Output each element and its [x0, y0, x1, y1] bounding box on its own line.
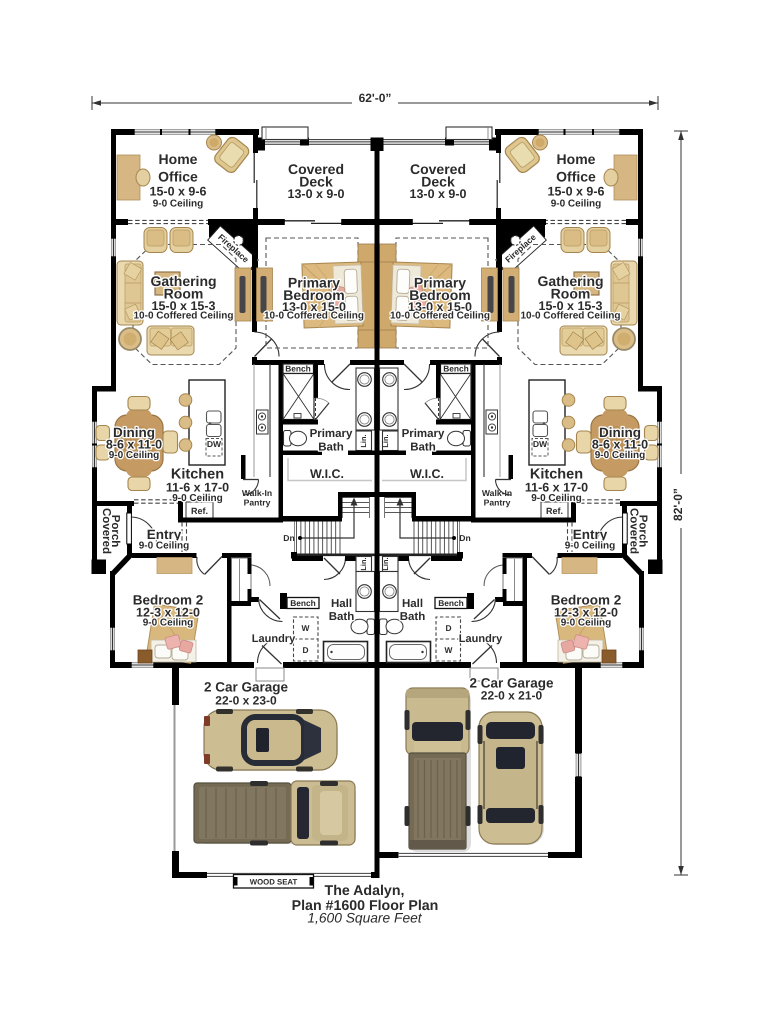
svg-text:82'-0”: 82'-0” [671, 488, 685, 521]
svg-text:13-0 x 9-0: 13-0 x 9-0 [410, 187, 467, 201]
svg-text:Walk-In: Walk-In [482, 488, 512, 498]
svg-text:13-0 x 9-0: 13-0 x 9-0 [288, 187, 345, 201]
svg-text:Walk-In: Walk-In [242, 488, 272, 498]
svg-text:Porch: Porch [637, 515, 649, 548]
svg-text:Laundry: Laundry [252, 633, 296, 645]
svg-text:9-0 Ceiling: 9-0 Ceiling [551, 199, 602, 210]
svg-text:Bath: Bath [400, 611, 426, 623]
svg-text:Bench: Bench [438, 598, 464, 608]
svg-text:Home: Home [557, 151, 596, 167]
svg-text:22-0 x 21-0: 22-0 x 21-0 [481, 689, 543, 703]
svg-text:9-0 Ceiling: 9-0 Ceiling [172, 493, 223, 504]
svg-text:10-0 Coffered Ceiling: 10-0 Coffered Ceiling [390, 311, 490, 322]
svg-text:Primary: Primary [310, 428, 353, 440]
svg-text:22-0 x 23-0: 22-0 x 23-0 [215, 694, 277, 708]
svg-text:Lin.: Lin. [381, 434, 390, 447]
svg-text:9-0 Ceiling: 9-0 Ceiling [565, 541, 616, 552]
svg-text:9-0 Ceiling: 9-0 Ceiling [109, 450, 160, 461]
svg-text:Lin.: Lin. [359, 557, 368, 570]
svg-text:Bath: Bath [329, 611, 355, 623]
svg-text:WOOD SEAT: WOOD SEAT [250, 878, 298, 887]
svg-text:Bench: Bench [290, 598, 316, 608]
svg-text:Dn: Dn [283, 533, 294, 543]
svg-text:10-0 Coffered Ceiling: 10-0 Coffered Ceiling [520, 311, 620, 322]
svg-text:Hall: Hall [331, 598, 352, 610]
svg-text:Lin.: Lin. [381, 557, 390, 570]
svg-text:Bench: Bench [443, 364, 469, 374]
svg-text:9-0 Ceiling: 9-0 Ceiling [561, 618, 612, 629]
svg-text:Primary: Primary [402, 428, 445, 440]
svg-text:W.I.C.: W.I.C. [410, 467, 444, 481]
svg-text:10-0 Coffered Ceiling: 10-0 Coffered Ceiling [133, 311, 233, 322]
svg-text:W.I.C.: W.I.C. [310, 467, 344, 481]
svg-text:W: W [302, 623, 310, 633]
svg-text:Lin.: Lin. [359, 434, 368, 447]
svg-text:Bath: Bath [318, 442, 344, 454]
svg-text:Porch: Porch [109, 515, 121, 548]
svg-text:9-0 Ceiling: 9-0 Ceiling [143, 618, 194, 629]
svg-text:1,600 Square Feet: 1,600 Square Feet [307, 911, 422, 926]
svg-text:DW: DW [207, 439, 222, 449]
svg-text:Bench: Bench [285, 364, 311, 374]
svg-text:D: D [445, 623, 451, 633]
svg-text:Ref.: Ref. [191, 506, 208, 516]
svg-text:Home: Home [159, 151, 198, 167]
svg-text:D: D [302, 645, 308, 655]
svg-text:Hall: Hall [402, 598, 423, 610]
svg-text:Office: Office [556, 169, 596, 185]
svg-text:15-0 x 9-6: 15-0 x 9-6 [150, 185, 207, 199]
svg-text:15-0 x 9-6: 15-0 x 9-6 [548, 185, 605, 199]
svg-text:The Adalyn,: The Adalyn, [325, 883, 405, 899]
svg-text:Laundry: Laundry [459, 633, 503, 645]
svg-text:Bath: Bath [410, 442, 436, 454]
svg-text:2 Car Garage: 2 Car Garage [204, 680, 289, 695]
svg-text:Ref.: Ref. [546, 506, 563, 516]
svg-text:62'-0”: 62'-0” [359, 91, 392, 105]
svg-text:10-0 Coffered Ceiling: 10-0 Coffered Ceiling [264, 311, 364, 322]
svg-text:DW: DW [533, 439, 548, 449]
svg-text:Dn: Dn [459, 533, 470, 543]
svg-text:9-0 Ceiling: 9-0 Ceiling [595, 450, 646, 461]
svg-text:Office: Office [158, 169, 198, 185]
svg-text:9-0 Ceiling: 9-0 Ceiling [531, 493, 582, 504]
svg-text:Pantry: Pantry [484, 498, 511, 508]
svg-text:Pantry: Pantry [244, 498, 271, 508]
svg-text:W: W [445, 645, 453, 655]
svg-text:9-0 Ceiling: 9-0 Ceiling [153, 199, 204, 210]
svg-text:9-0 Ceiling: 9-0 Ceiling [139, 541, 190, 552]
